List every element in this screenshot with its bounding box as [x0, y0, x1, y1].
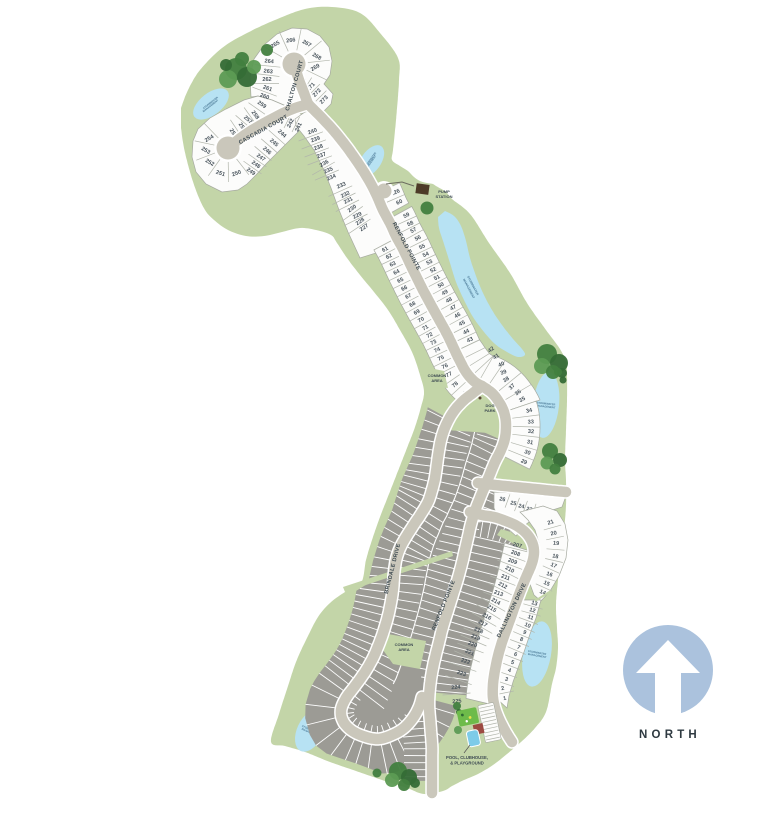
svg-text:NORTH: NORTH — [639, 729, 701, 741]
svg-text:25: 25 — [510, 500, 517, 507]
svg-text:224: 224 — [451, 685, 462, 692]
svg-text:32: 32 — [528, 429, 535, 435]
svg-text:AREA: AREA — [431, 378, 442, 383]
svg-text:& PLAYGROUND: & PLAYGROUND — [450, 761, 484, 766]
svg-text:263: 263 — [263, 68, 273, 75]
svg-text:AREA: AREA — [398, 647, 409, 652]
svg-text:POOL, CLUBHOUSE,: POOL, CLUBHOUSE, — [446, 755, 488, 760]
svg-text:33: 33 — [528, 419, 534, 425]
svg-text:262: 262 — [262, 77, 271, 83]
svg-text:26: 26 — [499, 496, 506, 503]
svg-text:31: 31 — [526, 439, 533, 446]
svg-text:20: 20 — [550, 530, 557, 537]
svg-text:STATION: STATION — [436, 194, 453, 199]
svg-text:PARK: PARK — [484, 408, 495, 413]
svg-text:266: 266 — [286, 37, 296, 44]
svg-text:264: 264 — [264, 58, 275, 65]
svg-text:19: 19 — [553, 541, 560, 547]
